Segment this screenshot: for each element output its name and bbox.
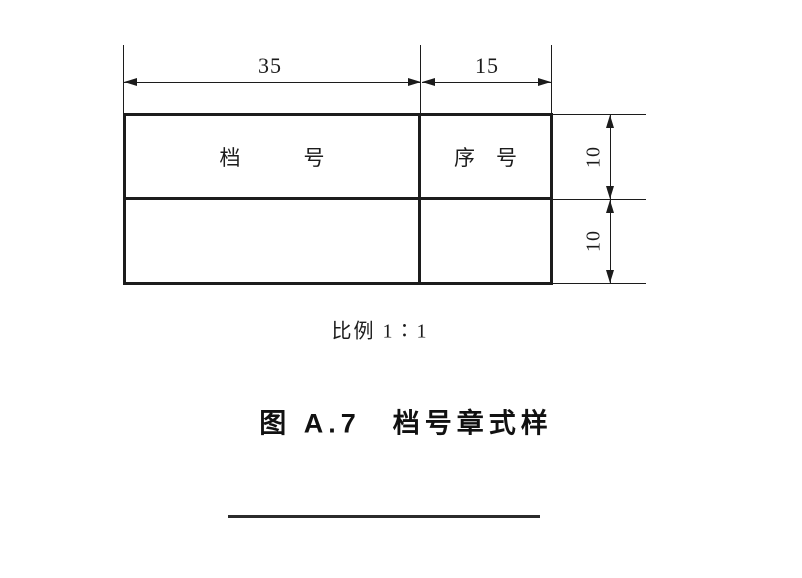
dimension-line-35 [124, 82, 421, 83]
stamp-cell-xuhao: 序 号 [421, 116, 550, 200]
extension-line-top-right [551, 45, 552, 113]
extension-line-right-middle [553, 199, 646, 200]
extension-line-right-top [553, 114, 646, 115]
arrowhead-down-icon [606, 270, 614, 283]
stamp-cell-empty-right [421, 200, 550, 282]
footer-rule [228, 515, 540, 518]
figure-caption: 图 A.7 档号章式样 [259, 402, 553, 441]
arrowhead-down-icon [606, 186, 614, 199]
extension-line-right-bottom [553, 283, 646, 284]
arrowhead-right-icon [538, 78, 551, 86]
stamp-table: 档 号 序 号 [123, 113, 553, 285]
arrowhead-up-icon [606, 115, 614, 128]
arrowhead-up-icon [606, 200, 614, 213]
dim-label-10-top: 10 [583, 146, 606, 168]
dim-label-35: 35 [258, 53, 282, 79]
stamp-cell-danghao: 档 号 [126, 116, 421, 200]
dim-label-15: 15 [475, 53, 499, 79]
stamp-cell-empty-left [126, 200, 421, 282]
arrowhead-left-icon [422, 78, 435, 86]
dim-label-10-bottom: 10 [583, 230, 606, 252]
arrowhead-left-icon [124, 78, 137, 86]
dimension-line-15 [422, 82, 551, 83]
scale-note: 比例 1∶1 [332, 315, 429, 344]
document-page: 35 15 档 号 序 号 10 10 比例 1∶1 图 A.7 档号章式样 [0, 0, 802, 578]
arrowhead-right-icon [408, 78, 421, 86]
